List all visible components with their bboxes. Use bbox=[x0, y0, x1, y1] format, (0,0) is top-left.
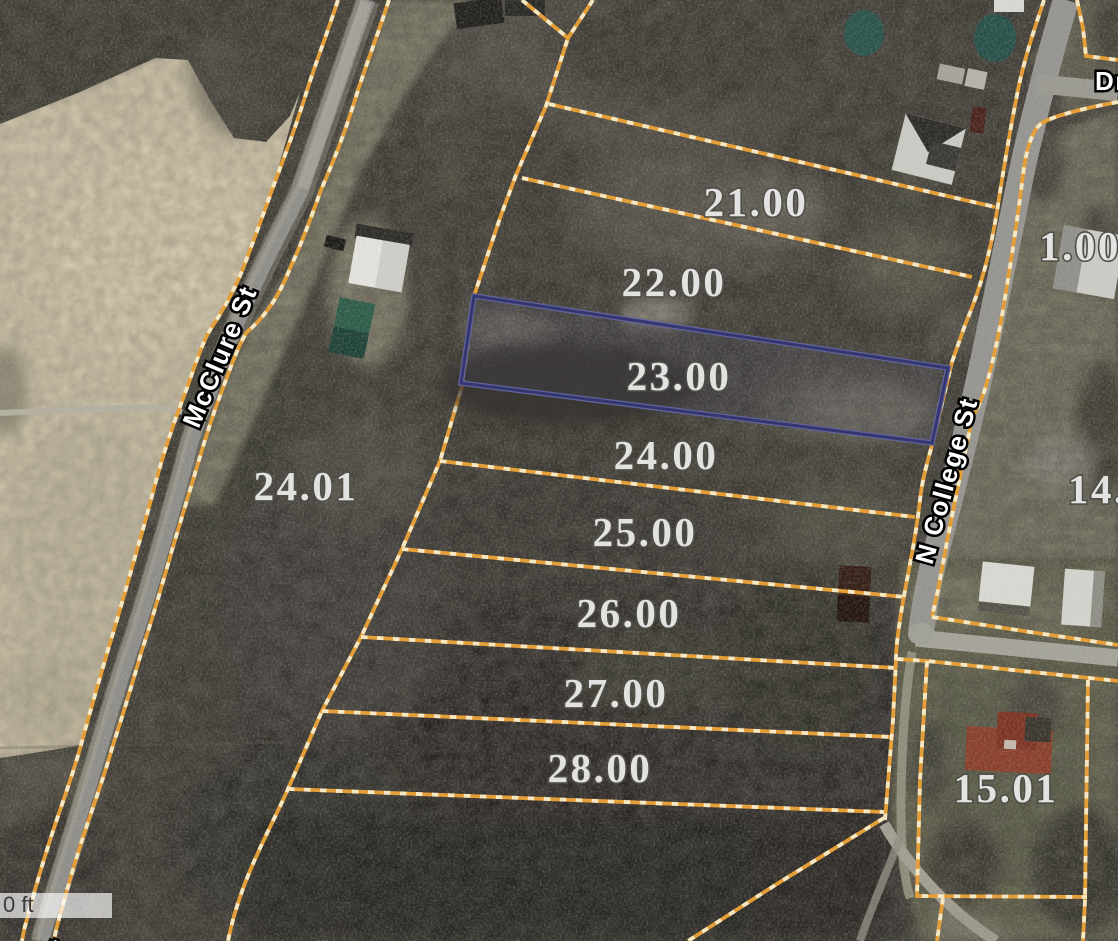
svg-text:Dr: Dr bbox=[1095, 66, 1118, 96]
svg-text:1.00: 1.00 bbox=[1039, 223, 1118, 269]
svg-text:22.00: 22.00 bbox=[622, 259, 727, 305]
svg-text:25.00: 25.00 bbox=[593, 509, 698, 555]
svg-text:26.00: 26.00 bbox=[577, 590, 682, 636]
svg-text:24.01: 24.01 bbox=[254, 463, 359, 509]
svg-text:27.00: 27.00 bbox=[564, 670, 669, 716]
svg-text:24.00: 24.00 bbox=[614, 432, 719, 478]
svg-text:23.00: 23.00 bbox=[627, 353, 732, 399]
svg-text:14.0: 14.0 bbox=[1068, 466, 1118, 512]
svg-text:15.01: 15.01 bbox=[954, 765, 1059, 811]
svg-text:21.00: 21.00 bbox=[704, 179, 809, 225]
svg-text:28.00: 28.00 bbox=[548, 745, 653, 791]
svg-text:0 ft: 0 ft bbox=[3, 892, 34, 917]
